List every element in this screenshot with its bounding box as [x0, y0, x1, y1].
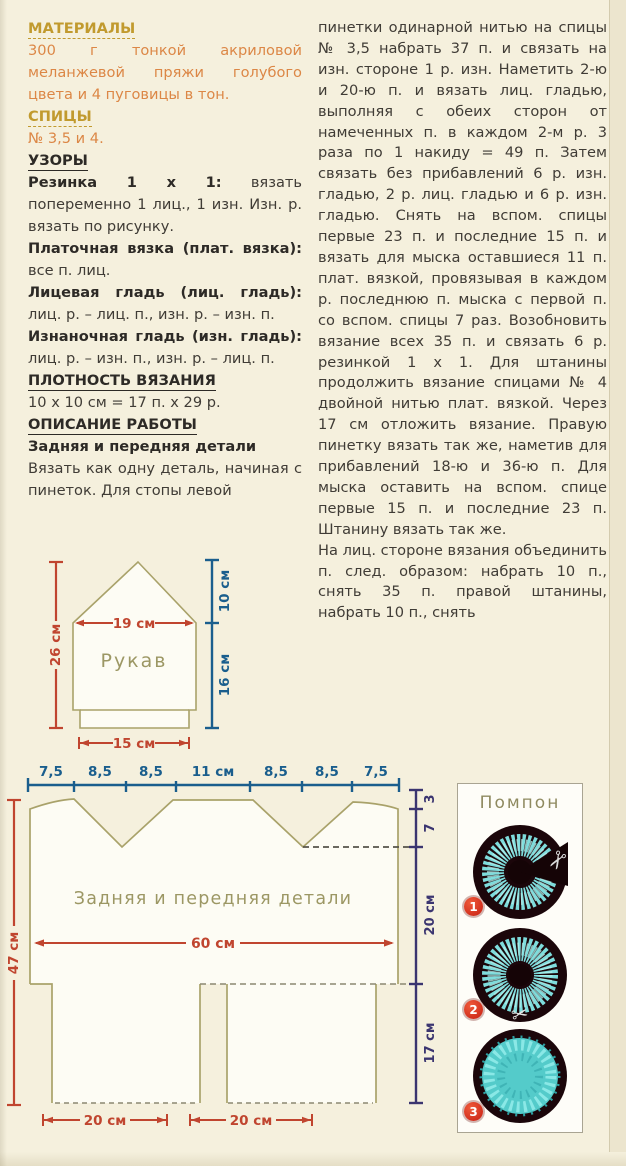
step-number-badge: 1 — [464, 897, 483, 916]
patterns-heading: УЗОРЫ — [28, 150, 302, 172]
right-text-column: пинетки одинарной нитью на спицы № 3,5 н… — [318, 18, 607, 624]
segment-label: 7,5 — [364, 764, 388, 780]
arrowhead — [157, 1117, 166, 1123]
segment-label: 11 см — [192, 764, 235, 780]
step-number-badge: 2 — [464, 1000, 483, 1019]
right-mark-label: 3 — [423, 794, 438, 803]
pompon-step-photo-3 — [472, 1028, 568, 1124]
work-subtitle: Задняя и передняя детали — [28, 436, 302, 458]
page-left-shadow — [0, 0, 7, 1166]
left-leg-width-label: 20 см — [84, 1113, 127, 1129]
top-dimension-line — [28, 778, 399, 792]
left-text-column: МАТЕРИАЛЫ 300 г тонкой акриловой меланже… — [28, 18, 302, 502]
segment-label: 8,5 — [139, 764, 163, 780]
right-mark-label: 17 см — [423, 1023, 438, 1064]
instructions-paragraph: пинетки одинарной нитью на спицы № 3,5 н… — [318, 18, 607, 541]
sleeve-outline — [73, 562, 196, 728]
right-mark-label: 20 см — [423, 895, 438, 936]
pompon-step2-image: ✂ — [472, 927, 568, 1023]
body-label: Задняя и передняя детали — [74, 889, 352, 909]
materials-heading: МАТЕРИАЛЫ — [28, 18, 302, 40]
work-body: Вязать как одну деталь, начиная с пинето… — [28, 458, 302, 502]
pompon-step-photo-2: ✂ — [472, 927, 568, 1023]
pompon-step3-image — [472, 1028, 568, 1124]
work-heading: ОПИСАНИЕ РАБОТЫ — [28, 414, 302, 436]
sleeve-height-label: 26 см — [48, 624, 64, 667]
page-right-edge — [609, 0, 626, 1166]
materials-body: 300 г тонкой акриловой меланжевой пряжи … — [28, 40, 302, 106]
cuff-width-label: 15 см — [113, 736, 156, 752]
page-bottom-edge — [0, 1152, 626, 1166]
instructions-paragraph: На лиц. стороне вязания объединить п. сл… — [318, 541, 607, 625]
gauge-heading: ПЛОТНОСТЬ ВЯЗАНИЯ — [28, 370, 302, 392]
segment-label: 8,5 — [264, 764, 288, 780]
segment-label: 7,5 — [39, 764, 63, 780]
needles-heading: СПИЦЫ — [28, 106, 302, 128]
arrowhead — [80, 740, 89, 746]
arrowhead — [44, 1117, 53, 1123]
pattern-item: Платочная вязка (плат. вязка): все п. ли… — [28, 238, 302, 282]
arrowhead — [191, 1117, 200, 1123]
pattern-item: Лицевая гладь (лиц. гладь): лиц. р. – ли… — [28, 282, 302, 326]
ring-hole — [509, 964, 531, 986]
right-leg-width-label: 20 см — [230, 1113, 273, 1129]
cap-height-label: 10 см — [217, 570, 233, 613]
sleeve-schematic: 26 см 19 см Рукав 10 см 16 см 15 см — [20, 553, 320, 758]
pattern-item: Изнаночная гладь (изн. гладь): лиц. р. –… — [28, 326, 302, 370]
right-mark-label: 7 — [423, 823, 438, 832]
right-measure-line — [409, 790, 423, 1103]
arrowhead — [179, 740, 188, 746]
needles-body: № 3,5 и 4. — [28, 128, 302, 150]
sleeve-label: Рукав — [100, 650, 167, 672]
step-number-badge: 3 — [464, 1102, 483, 1121]
pompon-step-photo-1: ✂ — [472, 824, 568, 920]
pompon-title: Помпон — [458, 793, 582, 813]
segment-label: 8,5 — [315, 764, 339, 780]
pattern-item: Резинка 1 х 1: вязать попеременно 1 лиц.… — [28, 172, 302, 238]
gauge-body: 10 х 10 см = 17 п. х 29 р. — [28, 392, 302, 414]
chest-width-label: 60 см — [191, 936, 235, 952]
arrowhead — [302, 1117, 311, 1123]
total-height-label: 47 см — [6, 932, 22, 975]
segment-label: 8,5 — [88, 764, 112, 780]
body-schematic: 7,5 8,5 8,5 11 см 8,5 8,5 7,5 47 см Задн… — [0, 763, 450, 1135]
pompon-instruction-panel: Помпон ✂ 1 ✂ 2 — [457, 783, 583, 1133]
lower-height-label: 16 см — [217, 654, 233, 697]
magazine-page: МАТЕРИАЛЫ 300 г тонкой акриловой меланже… — [0, 0, 626, 1166]
sleeve-top-width-label: 19 см — [113, 616, 156, 632]
pompon-step1-image: ✂ — [472, 824, 568, 920]
